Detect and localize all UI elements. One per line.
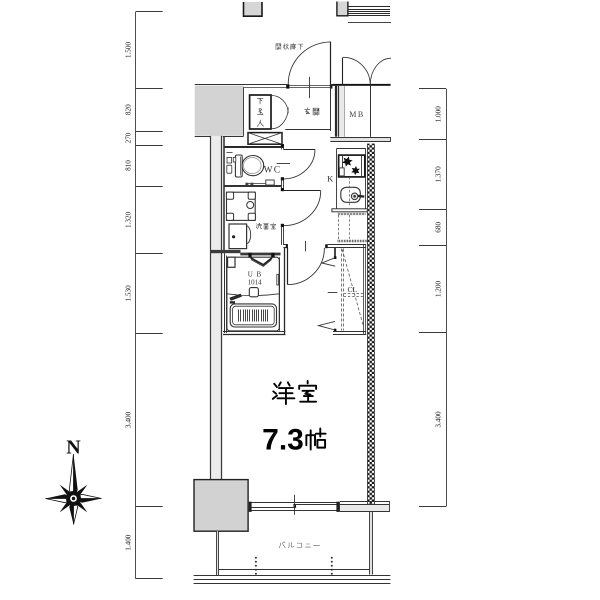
svg-text:1.500: 1.500 [124, 42, 132, 59]
svg-text:1.000: 1.000 [435, 106, 443, 123]
svg-text:CL: CL [348, 285, 358, 294]
svg-text:810: 810 [124, 160, 132, 171]
svg-text:K: K [327, 173, 334, 183]
svg-text:1.370: 1.370 [435, 166, 443, 183]
svg-text:680: 680 [435, 222, 443, 233]
svg-text:MB: MB [349, 110, 364, 119]
svg-text:1.400: 1.400 [124, 534, 132, 551]
svg-text:1.320: 1.320 [124, 211, 132, 228]
svg-text:3.400: 3.400 [124, 411, 132, 428]
svg-text:WC: WC [264, 165, 282, 175]
svg-text:270: 270 [124, 132, 132, 143]
svg-text:820: 820 [124, 104, 132, 115]
svg-text:3.400: 3.400 [435, 411, 443, 428]
svg-text:1.200: 1.200 [435, 281, 443, 298]
svg-text:1014: 1014 [248, 279, 263, 287]
svg-text:1.530: 1.530 [124, 285, 132, 302]
svg-text:U B: U B [248, 271, 262, 279]
svg-text:7.3: 7.3 [262, 424, 304, 457]
